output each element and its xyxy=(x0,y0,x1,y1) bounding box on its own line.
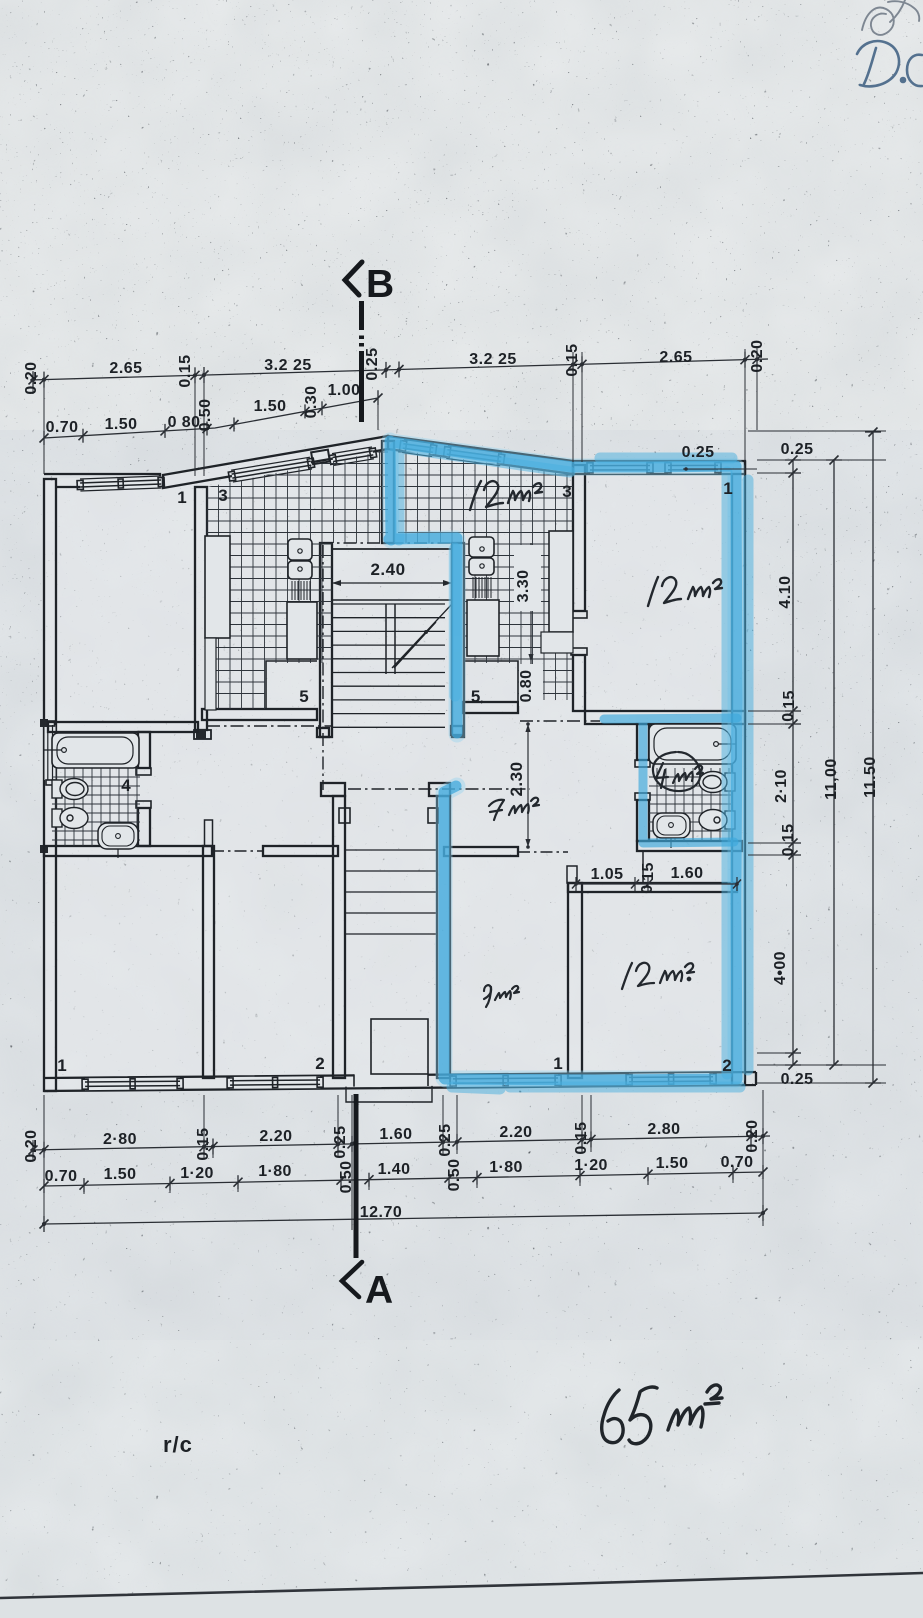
svg-text:1.50: 1.50 xyxy=(656,1155,689,1172)
svg-text:12.70: 12.70 xyxy=(360,1204,403,1221)
svg-text:1.60: 1.60 xyxy=(379,1126,412,1143)
svg-text:2: 2 xyxy=(315,1054,324,1073)
svg-text:1·80: 1·80 xyxy=(258,1163,292,1180)
svg-text:4: 4 xyxy=(121,776,131,795)
svg-text:r/c: r/c xyxy=(163,1432,193,1457)
svg-text:2·10: 2·10 xyxy=(773,769,790,803)
svg-text:0.25: 0.25 xyxy=(682,444,715,461)
svg-text:3.2 25: 3.2 25 xyxy=(469,351,516,368)
svg-text:2: 2 xyxy=(722,1056,731,1075)
svg-text:0.25: 0.25 xyxy=(364,347,381,380)
svg-text:1.00: 1.00 xyxy=(328,382,361,399)
svg-text:0.20: 0.20 xyxy=(744,1119,761,1152)
svg-text:11.50: 11.50 xyxy=(862,756,879,798)
svg-text:4•00: 4•00 xyxy=(772,951,789,985)
svg-text:0.70: 0.70 xyxy=(46,419,79,436)
svg-text:1.50: 1.50 xyxy=(254,398,287,415)
svg-text:0.50: 0.50 xyxy=(197,399,214,432)
svg-text:0.80: 0.80 xyxy=(518,670,535,703)
svg-text:2.65: 2.65 xyxy=(659,349,692,366)
svg-text:0.70: 0.70 xyxy=(721,1154,754,1171)
svg-text:0.15: 0.15 xyxy=(573,1121,590,1154)
svg-text:0.25: 0.25 xyxy=(781,1071,814,1088)
svg-text:0.20: 0.20 xyxy=(23,361,40,394)
svg-text:4.10: 4.10 xyxy=(777,575,794,608)
svg-text:3: 3 xyxy=(562,482,571,501)
svg-text:0.15: 0.15 xyxy=(564,343,581,376)
svg-text:0.25: 0.25 xyxy=(781,441,814,458)
svg-text:2.65: 2.65 xyxy=(109,360,142,377)
svg-text:2.80: 2.80 xyxy=(647,1121,680,1138)
svg-text:2.20: 2.20 xyxy=(499,1124,532,1141)
svg-text:0 15: 0 15 xyxy=(780,690,798,722)
svg-text:A: A xyxy=(365,1269,393,1312)
svg-text:1.60: 1.60 xyxy=(671,865,704,882)
svg-text:0.25: 0.25 xyxy=(437,1123,454,1156)
svg-text:0.30: 0.30 xyxy=(303,386,320,419)
svg-text:5: 5 xyxy=(299,687,308,706)
svg-text:2.30: 2.30 xyxy=(507,761,526,796)
svg-text:1.40: 1.40 xyxy=(378,1161,411,1178)
svg-text:3.2 25: 3.2 25 xyxy=(264,357,311,374)
svg-text:0.15: 0.15 xyxy=(177,354,194,387)
svg-text:0.15: 0.15 xyxy=(195,1127,212,1160)
svg-text:1: 1 xyxy=(553,1054,562,1073)
svg-text:0.70: 0.70 xyxy=(45,1168,78,1185)
svg-text:1: 1 xyxy=(57,1056,66,1075)
svg-text:1.50: 1.50 xyxy=(105,416,138,433)
svg-text:0.25: 0.25 xyxy=(332,1125,349,1158)
svg-text:2·80: 2·80 xyxy=(103,1131,137,1148)
svg-text:1: 1 xyxy=(723,479,732,498)
svg-text:2.20: 2.20 xyxy=(259,1128,292,1145)
svg-text:0 80: 0 80 xyxy=(168,414,201,431)
svg-text:1.50: 1.50 xyxy=(104,1166,137,1183)
svg-text:3: 3 xyxy=(218,486,227,505)
svg-text:1.05: 1.05 xyxy=(591,866,624,883)
svg-text:0.50: 0.50 xyxy=(446,1159,463,1192)
svg-text:3.30: 3.30 xyxy=(515,570,532,603)
svg-text:1: 1 xyxy=(177,488,186,507)
svg-text:1·20: 1·20 xyxy=(574,1157,608,1174)
svg-text:11,00: 11,00 xyxy=(823,758,840,800)
svg-text:2.40: 2.40 xyxy=(370,560,405,579)
svg-text:1·80: 1·80 xyxy=(489,1159,523,1176)
svg-text:0 15: 0 15 xyxy=(780,824,797,857)
svg-text:B: B xyxy=(366,263,394,306)
svg-text:1·20: 1·20 xyxy=(180,1165,214,1182)
svg-text:0.20: 0.20 xyxy=(23,1129,40,1162)
svg-text:0.50: 0.50 xyxy=(338,1161,355,1194)
svg-text:0.20: 0.20 xyxy=(749,339,766,372)
svg-text:0 15: 0 15 xyxy=(639,862,657,894)
